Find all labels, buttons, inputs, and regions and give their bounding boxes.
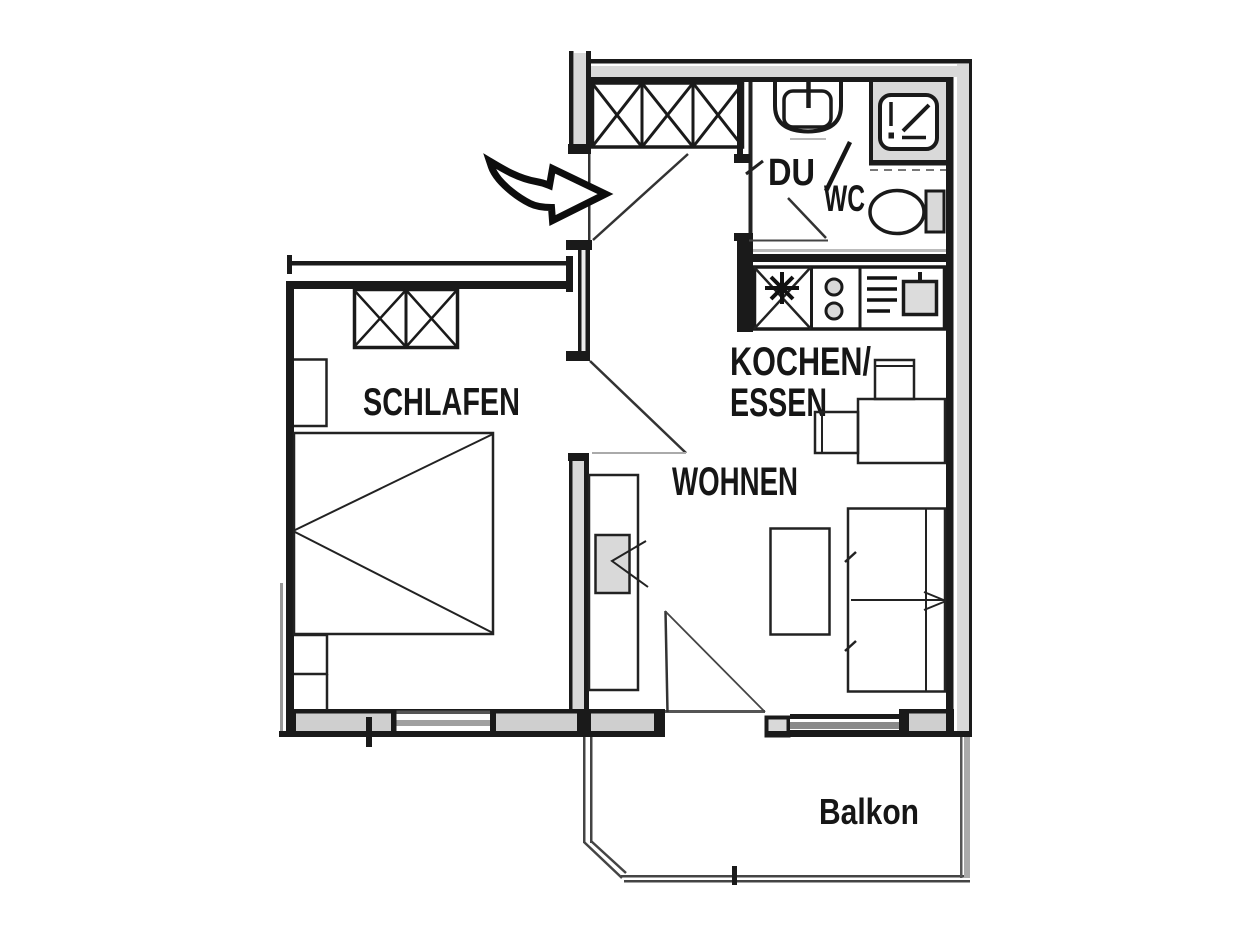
svg-text:SCHLAFEN: SCHLAFEN xyxy=(363,381,520,424)
svg-text:WOHNEN: WOHNEN xyxy=(672,460,798,504)
svg-text:KOCHEN/: KOCHEN/ xyxy=(730,340,871,384)
svg-text:WC: WC xyxy=(824,178,865,219)
svg-text:DU: DU xyxy=(768,152,815,194)
svg-text:ESSEN: ESSEN xyxy=(730,381,827,425)
svg-text:Balkon: Balkon xyxy=(819,791,919,832)
